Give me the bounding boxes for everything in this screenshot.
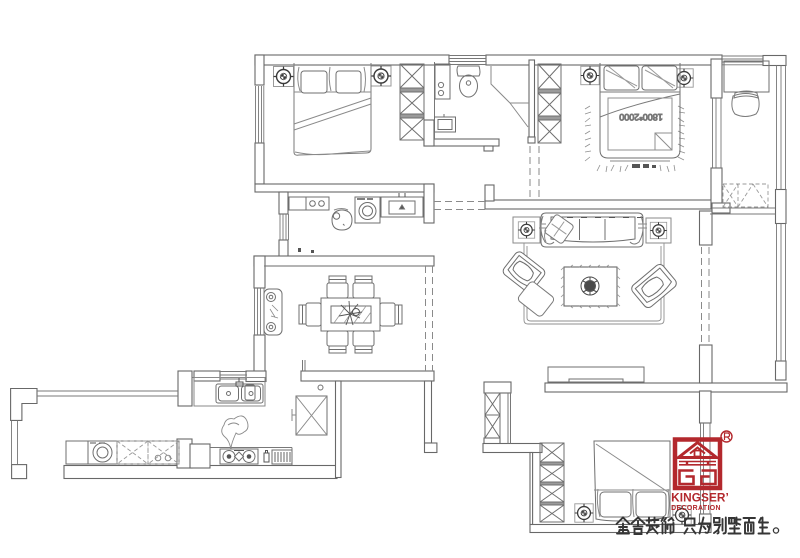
svg-text:KINGSER’: KINGSER’ [671, 491, 729, 505]
svg-text:DECORATION: DECORATION [671, 505, 721, 512]
svg-text:1800*2000: 1800*2000 [619, 112, 663, 122]
